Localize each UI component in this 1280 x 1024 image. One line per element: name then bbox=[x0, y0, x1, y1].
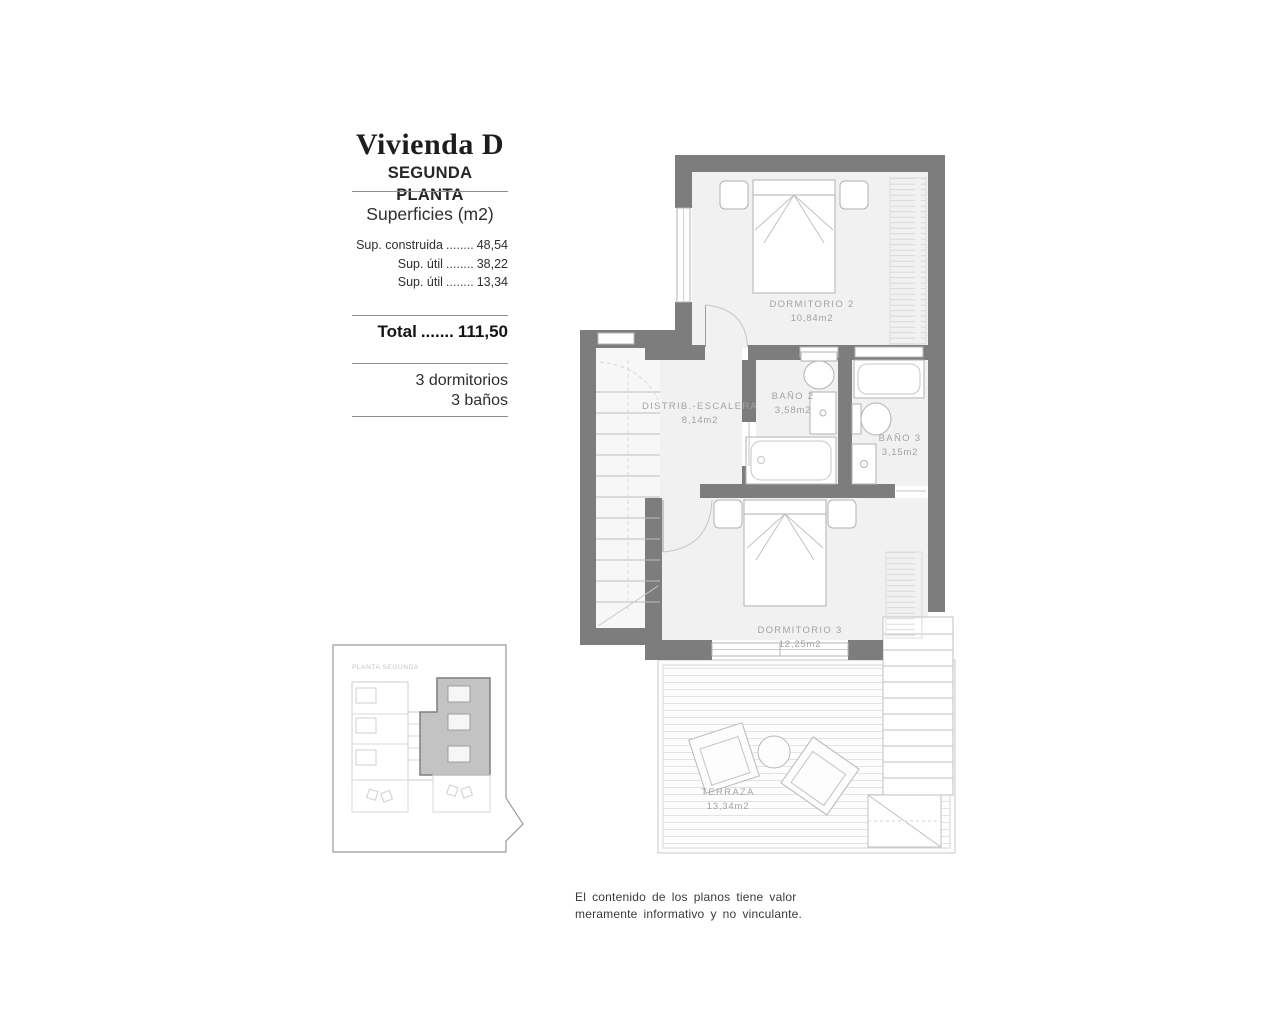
room-label-terraza: TERRAZA13,34m2 bbox=[701, 786, 754, 813]
plan-title: Vivienda D bbox=[352, 128, 508, 162]
key-plan-label: PLANTA SEGUNDA bbox=[352, 664, 419, 671]
surface-row: Sup. construida........48,54 bbox=[352, 236, 508, 255]
program-bathrooms: 3 baños bbox=[352, 391, 508, 411]
title-block: Vivienda D SEGUNDA PLANTA bbox=[352, 128, 508, 206]
floor-plan-drawing bbox=[0, 0, 1280, 1024]
disclaimer-line-2: meramente informativo y no vinculante. bbox=[575, 906, 815, 923]
program-bedrooms: 3 dormitorios bbox=[352, 371, 508, 391]
disclaimer-line-1: El contenido de los planos tiene valor bbox=[575, 889, 815, 906]
divider bbox=[352, 315, 508, 316]
disclaimer-note: El contenido de los planos tiene valor m… bbox=[575, 889, 815, 922]
surface-row: Sup. útil........13,34 bbox=[352, 273, 508, 292]
surface-row: Sup. útil........38,22 bbox=[352, 255, 508, 274]
room-label-distribuidor-escalera: DISTRIB.-ESCALERA8,14m2 bbox=[642, 400, 758, 427]
room-label-dormitorio-3: DORMITORIO 312,25m2 bbox=[757, 624, 842, 651]
divider bbox=[352, 363, 508, 364]
plan-subtitle: SEGUNDA PLANTA bbox=[352, 162, 508, 206]
room-label-bano-2: BAÑO 23,58m2 bbox=[772, 390, 815, 417]
surfaces-table: Sup. construida........48,54 Sup. útil..… bbox=[352, 236, 508, 292]
program-summary: 3 dormitorios 3 baños bbox=[352, 371, 508, 411]
divider bbox=[352, 416, 508, 417]
total-row: Total.......111,50 bbox=[352, 322, 508, 342]
room-label-bano-3: BAÑO 33,15m2 bbox=[879, 432, 922, 459]
divider bbox=[352, 191, 508, 192]
key-plan bbox=[333, 645, 523, 852]
surfaces-heading: Superficies (m2) bbox=[352, 204, 508, 225]
room-label-dormitorio-2: DORMITORIO 210,84m2 bbox=[769, 298, 854, 325]
